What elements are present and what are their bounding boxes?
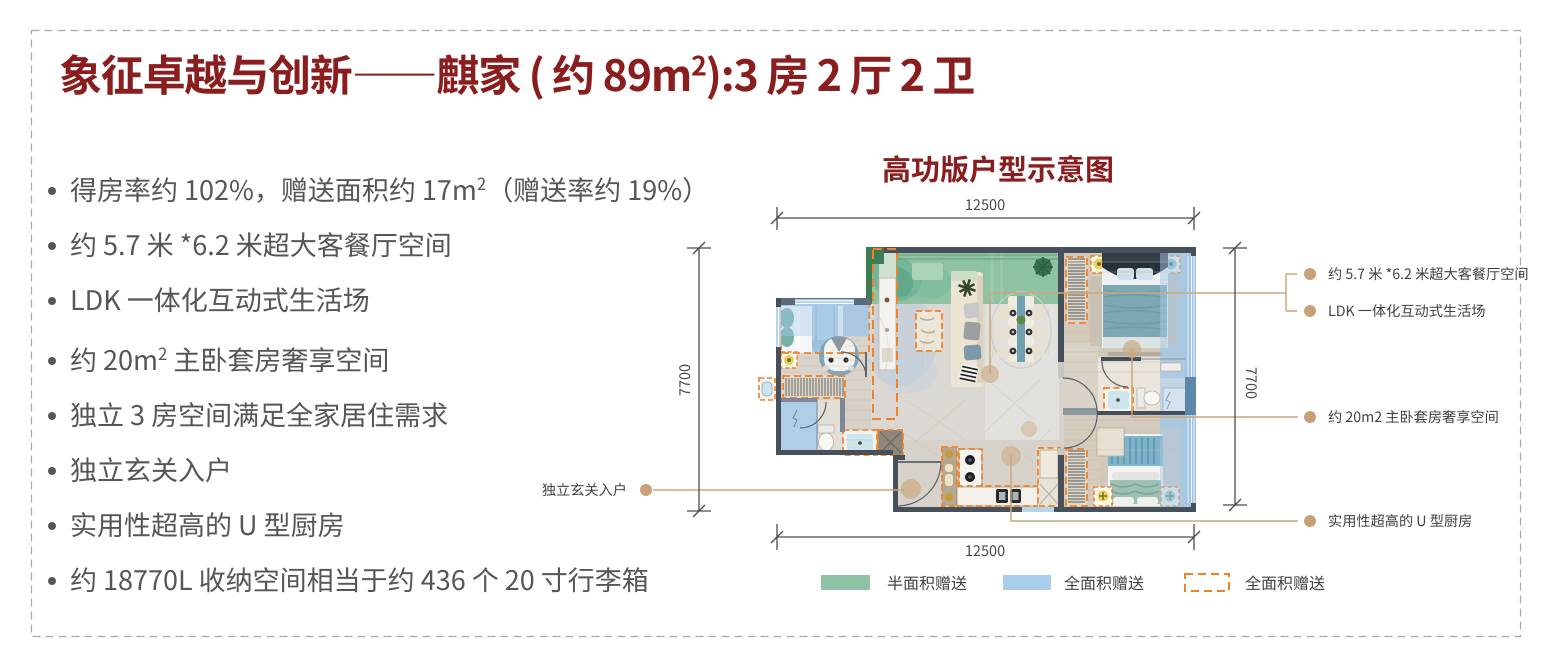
svg-text:12500: 12500 xyxy=(965,540,1005,561)
svg-text:约 20m2 主卧套房奢享空间: 约 20m2 主卧套房奢享空间 xyxy=(1328,407,1499,427)
svg-text:半面积赠送: 半面积赠送 xyxy=(887,570,967,594)
svg-text:12500: 12500 xyxy=(965,194,1005,215)
svg-text:7700: 7700 xyxy=(674,364,695,396)
svg-text:高功版户型示意图: 高功版户型示意图 xyxy=(882,147,1114,189)
svg-text:LDK 一体化互动式生活场: LDK 一体化互动式生活场 xyxy=(1328,301,1486,321)
svg-text:实用性超高的 U 型厨房: 实用性超高的 U 型厨房 xyxy=(1328,511,1472,531)
svg-text:独立玄关入户: 独立玄关入户 xyxy=(542,480,627,500)
svg-text:约 5.7 米 *6.2 米超大客餐厅空间: 约 5.7 米 *6.2 米超大客餐厅空间 xyxy=(1328,264,1529,284)
svg-text:全面积赠送: 全面积赠送 xyxy=(1245,570,1325,594)
svg-text:全面积赠送: 全面积赠送 xyxy=(1064,570,1144,594)
svg-text:7700: 7700 xyxy=(1241,367,1262,399)
